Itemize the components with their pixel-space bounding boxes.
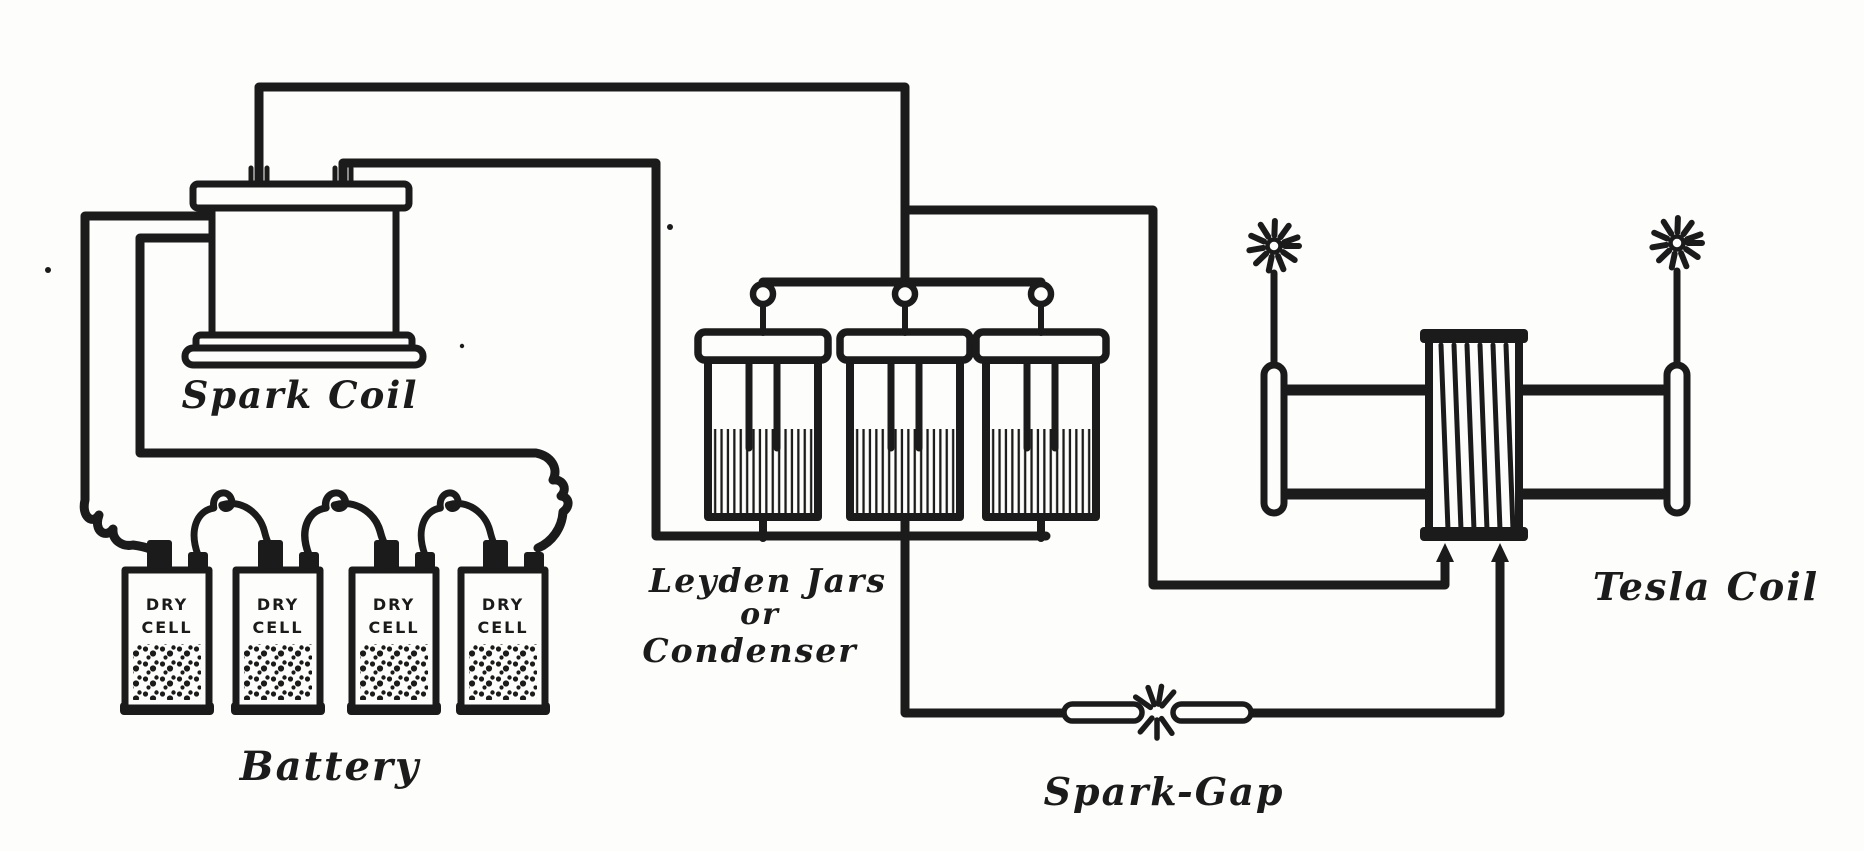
cell-label-line1: DRY	[257, 595, 299, 614]
spark-ball-icon-right	[1652, 218, 1702, 268]
jar-knob	[895, 284, 915, 304]
jar-lid	[698, 332, 828, 360]
jar-lid	[976, 332, 1106, 360]
battery: DRY CELL DRY CELL DRY CELL DR	[120, 493, 550, 790]
diagram-canvas: Spark Coil DRY CELL DRY CELL DRY	[0, 0, 1864, 851]
primary-top-flange	[1420, 329, 1528, 343]
primary-bottom-flange	[1420, 527, 1528, 541]
battery-label: Battery	[239, 743, 421, 790]
cell-label-line1: DRY	[146, 595, 188, 614]
jar-foil-hatch	[990, 429, 1092, 513]
cell-terminal-left	[147, 540, 172, 572]
spark-coil-body	[212, 206, 396, 338]
cell-label-line2: CELL	[368, 618, 419, 637]
secondary-end-disc-left	[1264, 365, 1284, 513]
cell-texture	[244, 644, 312, 700]
cell-label-line1: DRY	[373, 595, 415, 614]
jar-lid	[840, 332, 970, 360]
spark-coil: Spark Coil	[182, 168, 423, 417]
cell-texture	[133, 644, 201, 700]
dry-cell-2: DRY CELL	[231, 540, 325, 715]
leyden-jar-3	[976, 284, 1106, 538]
jar-knob	[1031, 284, 1051, 304]
cell-label-line2: CELL	[141, 618, 192, 637]
ink-speck	[460, 344, 464, 348]
spark-ball-icon-left	[1249, 221, 1299, 271]
cell-label-line2: CELL	[252, 618, 303, 637]
condenser-label-line2: or	[740, 597, 780, 632]
condenser-label-line3: Condenser	[642, 631, 858, 670]
jar-knob	[753, 284, 773, 304]
spark-gap: Spark-Gap	[1044, 686, 1285, 814]
scanned-circuit-diagram: Spark Coil DRY CELL DRY CELL DRY	[0, 0, 1864, 851]
spark-gap-electrode-right	[1173, 704, 1251, 721]
secondary-end-disc-right	[1667, 365, 1687, 513]
dry-cell-3: DRY CELL	[347, 540, 441, 715]
wire-condenser-to-spark-gap	[905, 517, 1062, 713]
dry-cell-1: DRY CELL	[120, 540, 214, 715]
condenser: Leyden Jars or Condenser	[642, 282, 1106, 670]
primary-tap-arrow-right	[1491, 543, 1509, 562]
ink-speck	[45, 267, 51, 273]
tesla-coil-label: Tesla Coil	[1593, 564, 1819, 609]
dry-cell-4: DRY CELL	[456, 540, 550, 715]
condenser-label-line1: Leyden Jars	[648, 561, 887, 600]
cell-terminal-right	[524, 552, 544, 572]
spark-coil-label: Spark Coil	[182, 373, 419, 417]
cell-texture	[360, 644, 428, 700]
primary-tap-arrow-left	[1436, 543, 1454, 562]
jar-foil-hatch	[712, 429, 814, 513]
cell-texture	[469, 644, 537, 700]
tesla-coil: Tesla Coil	[1249, 218, 1819, 609]
spark-coil-lid	[193, 184, 409, 208]
spark-coil-base-lower	[185, 348, 423, 365]
leyden-jar-2	[840, 284, 970, 517]
jar-foil-hatch	[854, 429, 956, 513]
spark-gap-electrode-left	[1064, 704, 1142, 721]
leyden-jar-1	[698, 284, 828, 538]
cell-label-line2: CELL	[477, 618, 528, 637]
ink-speck	[667, 224, 673, 230]
spark-gap-label: Spark-Gap	[1044, 769, 1285, 814]
cell-label-line1: DRY	[482, 595, 524, 614]
